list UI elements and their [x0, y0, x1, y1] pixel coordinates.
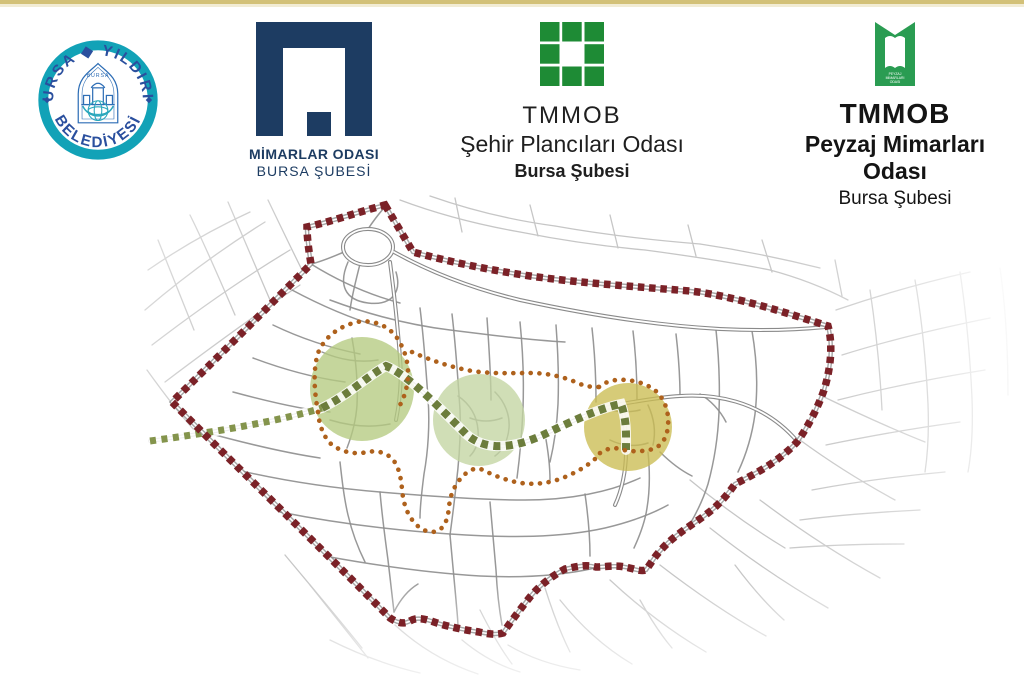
svg-text:ODASI: ODASI	[890, 80, 901, 84]
spo-line1: TMMOB	[458, 102, 686, 130]
pmo-line2: Peyzaj Mimarları Odası	[778, 131, 1012, 185]
poster-page: BURSA ◆ YILDIRIM BELEDİYESİ BURSA	[0, 0, 1024, 682]
mimarlar-line2: BURSA ŞUBESİ	[236, 163, 392, 179]
svg-text:BURSA: BURSA	[87, 73, 110, 79]
spo-line3: Bursa Şubesi	[458, 161, 686, 182]
pmo-book-icon: PEYZAJ MİMARLARI ODASI	[875, 20, 915, 86]
pmo-line1: TMMOB	[778, 98, 1012, 130]
mimarlar-odasi-icon	[256, 22, 372, 136]
mimarlar-odasi-logo: MİMARLAR ODASI BURSA ŞUBESİ	[236, 22, 392, 179]
spo-line2: Şehir Plancıları Odası	[458, 131, 686, 158]
zone-west	[310, 337, 414, 441]
bottom-fade	[0, 575, 1024, 682]
mimarlar-line1: MİMARLAR ODASI	[236, 146, 392, 162]
spo-grid-icon	[540, 22, 604, 86]
peyzaj-mimarlari-odasi-logo: PEYZAJ MİMARLARI ODASI TMMOB Peyzaj Mima…	[778, 20, 1012, 210]
bursa-yildirim-belediyesi-logo: BURSA ◆ YILDIRIM BELEDİYESİ BURSA	[22, 24, 174, 176]
pmo-line3: Bursa Şubesi	[778, 188, 1012, 210]
sehir-plancilari-odasi-logo: TMMOB Şehir Plancıları Odası Bursa Şubes…	[458, 22, 686, 182]
header-logos: BURSA ◆ YILDIRIM BELEDİYESİ BURSA	[0, 0, 1024, 195]
